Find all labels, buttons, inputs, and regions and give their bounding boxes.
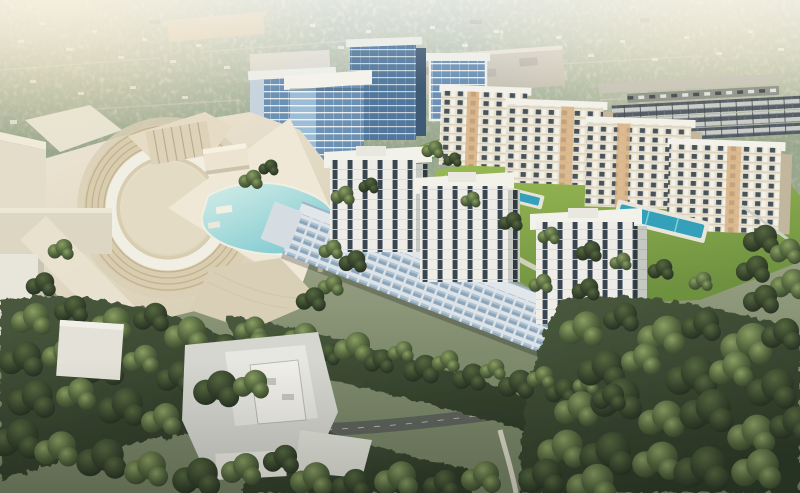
render-canvas: Sunlit aerial view of a new urban distri… xyxy=(0,0,800,493)
aerial-development-render: Sunlit aerial view of a new urban distri… xyxy=(0,0,800,493)
